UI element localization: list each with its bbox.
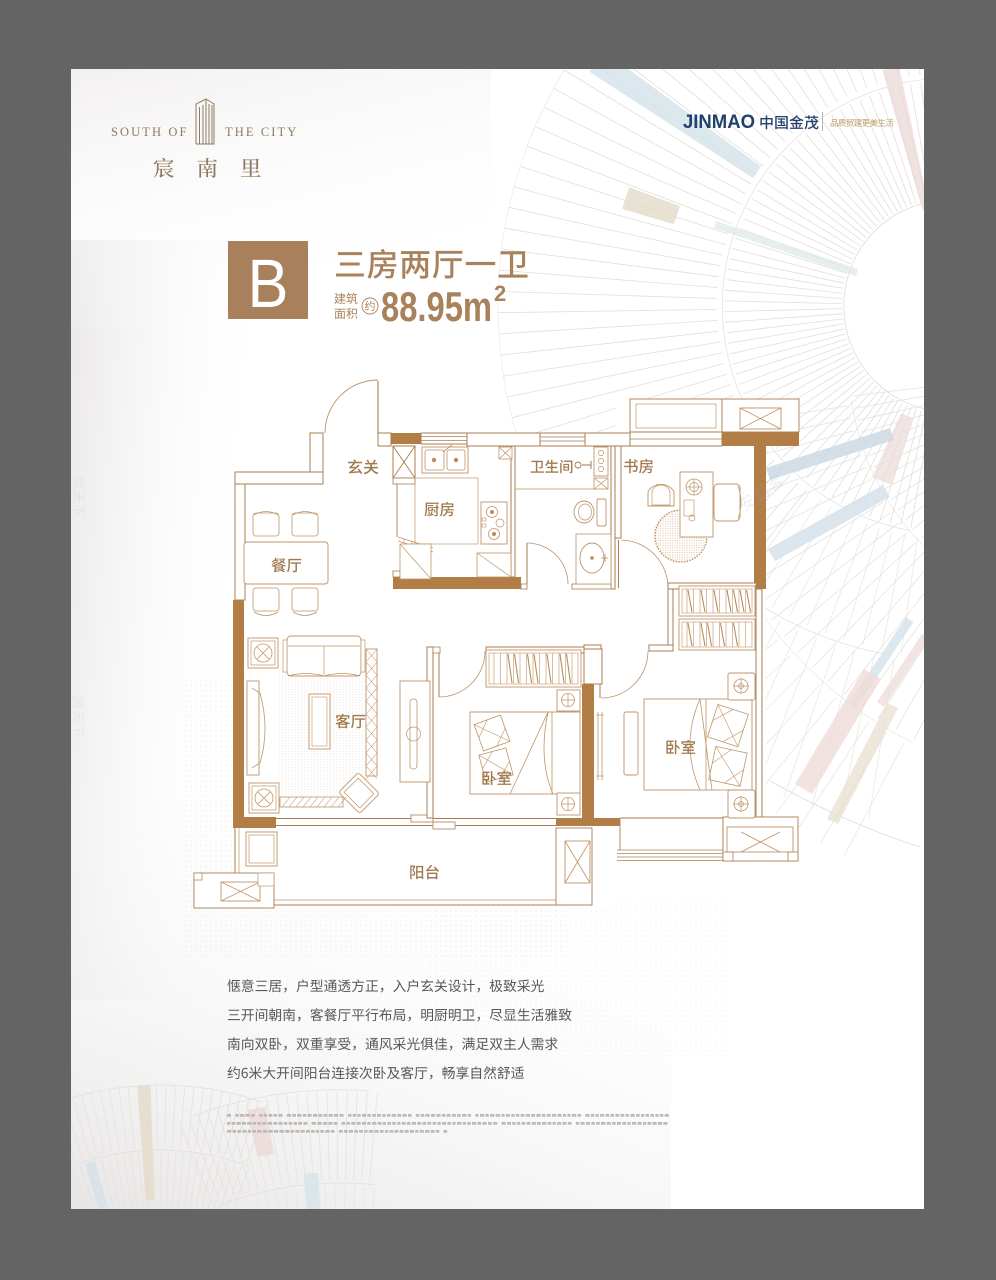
svg-text:2: 2 — [494, 281, 506, 306]
svg-text:B: B — [248, 245, 289, 322]
svg-text:THE CITY: THE CITY — [225, 125, 298, 139]
svg-text:SOUTH OF: SOUTH OF — [111, 125, 189, 139]
svg-text:88.95m: 88.95m — [381, 283, 492, 330]
svg-text:JINMAO: JINMAO — [683, 112, 755, 133]
